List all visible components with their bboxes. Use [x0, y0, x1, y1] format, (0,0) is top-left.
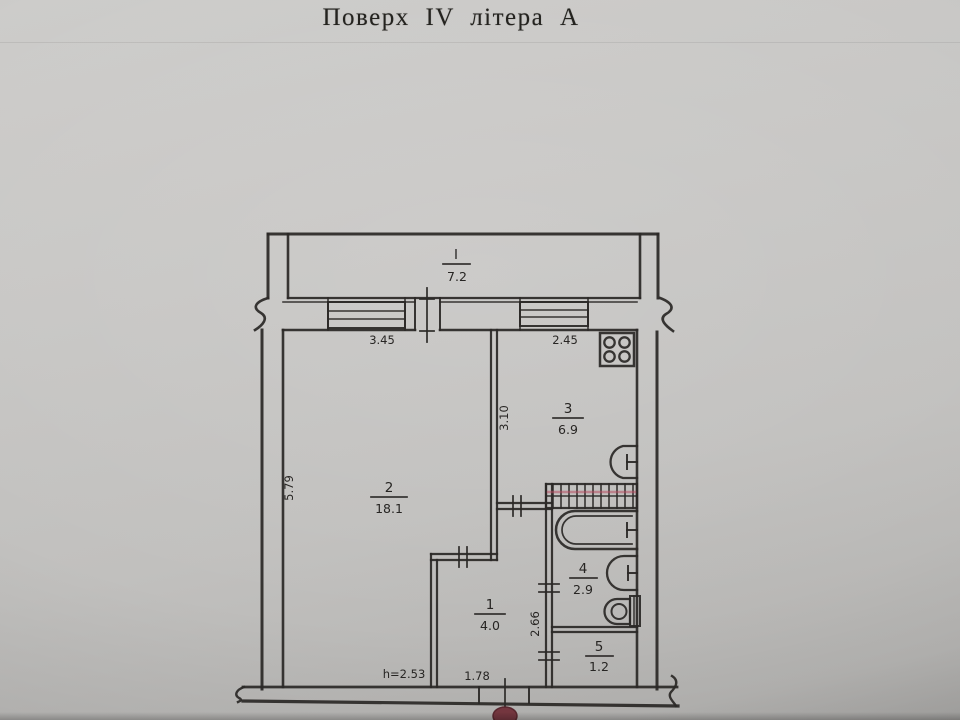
svg-text:4: 4 [579, 561, 588, 577]
photographed-floor-plan-page: Поверх IV літера А [0, 0, 960, 720]
room-label-living-room: 2 18.1 [371, 480, 407, 516]
room-label-bathroom: 4 2.9 [570, 561, 597, 597]
dim-kitchen-depth: 3.10 [497, 405, 511, 431]
svg-text:2: 2 [385, 480, 394, 496]
svg-text:I: I [454, 247, 458, 263]
room-label-hallway: 1 4.0 [475, 597, 505, 633]
dim-living-depth: 5.79 [282, 475, 296, 501]
svg-text:2.9: 2.9 [573, 582, 593, 597]
svg-text:7.2: 7.2 [447, 269, 467, 284]
vent-grille-icon [546, 484, 637, 508]
fixtures [546, 333, 640, 626]
svg-text:4.0: 4.0 [480, 618, 500, 633]
svg-text:6.9: 6.9 [558, 422, 578, 437]
window-band [283, 288, 637, 342]
toilet-icon [605, 596, 641, 626]
wall-break-left-icon [255, 298, 268, 330]
balcony-door-icon [415, 288, 440, 342]
living-room-door-icon [459, 547, 467, 567]
stove-icon [600, 333, 634, 366]
washbasin-icon [607, 556, 637, 590]
floor-plan-drawing: I 7.2 2 18.1 3 6.9 1 4.0 [0, 0, 960, 720]
window-kitchen-icon [520, 298, 588, 330]
room-label-wc: 5 1.2 [586, 639, 613, 674]
room-label-balcony: I 7.2 [443, 247, 470, 284]
wall-break-right-icon [660, 298, 673, 331]
wall-break-bottom-right-icon [670, 676, 676, 706]
room-label-kitchen: 3 6.9 [553, 401, 583, 437]
dim-bathroom-depth: 2.66 [528, 611, 542, 637]
dim-hall-width: 1.78 [464, 669, 490, 683]
wc-door-icon [539, 652, 559, 660]
window-living-room-icon [328, 298, 405, 330]
dim-kitchen-width: 2.45 [552, 333, 578, 347]
svg-text:1: 1 [486, 597, 495, 613]
bathroom-door-icon [539, 584, 559, 592]
svg-text:5: 5 [595, 639, 604, 655]
svg-text:18.1: 18.1 [375, 501, 403, 516]
svg-text:3: 3 [564, 401, 573, 417]
kitchen-door-icon [513, 496, 521, 516]
dim-ceiling-height: h=2.53 [383, 667, 426, 681]
outer-walls [236, 330, 678, 706]
svg-text:1.2: 1.2 [589, 659, 609, 674]
dim-living-width: 3.45 [369, 333, 395, 347]
bathtub-icon [556, 511, 637, 549]
photo-bottom-shadow [0, 712, 960, 720]
kitchen-sink-icon [611, 446, 637, 478]
